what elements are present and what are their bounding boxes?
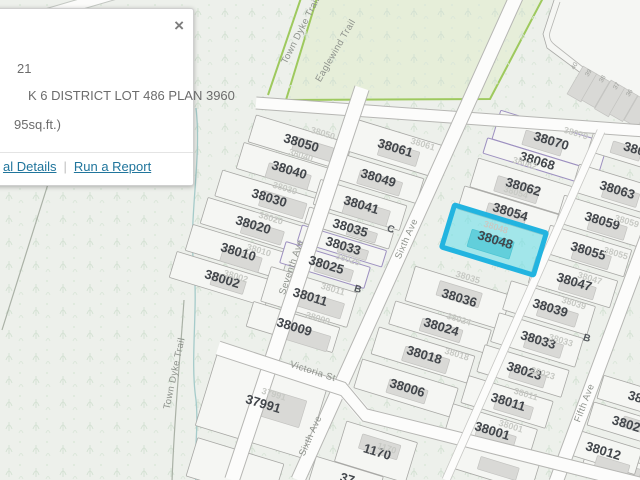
close-icon[interactable]: × xyxy=(174,17,184,34)
popup-divider xyxy=(0,152,193,153)
popup-area-text: 95sq.ft.) xyxy=(14,117,61,132)
popup-lot-text: 21 xyxy=(17,61,31,76)
map-application: 3805038040380303802038010380023806138049… xyxy=(0,0,640,480)
link-separator: | xyxy=(63,159,66,174)
run-report-link[interactable]: Run a Report xyxy=(74,159,151,174)
popup-links: al Details|Run a Report xyxy=(3,159,151,174)
popup-legal-description: K 6 DISTRICT LOT 486 PLAN 3960 xyxy=(28,88,235,103)
info-popup: × 21 K 6 DISTRICT LOT 486 PLAN 3960 95sq… xyxy=(0,8,194,186)
legal-details-link[interactable]: al Details xyxy=(3,159,56,174)
